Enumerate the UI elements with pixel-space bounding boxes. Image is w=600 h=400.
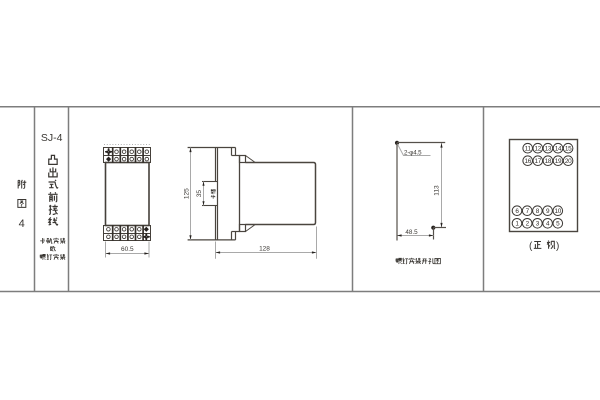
- svg-text:35: 35: [196, 190, 203, 198]
- svg-text:1: 1: [515, 221, 519, 228]
- svg-text:2: 2: [526, 221, 530, 228]
- svg-text:20: 20: [565, 158, 572, 165]
- svg-text:125: 125: [184, 188, 191, 199]
- svg-text:5: 5: [556, 221, 560, 228]
- svg-text:6: 6: [515, 208, 519, 215]
- svg-text:4: 4: [546, 221, 550, 228]
- svg-text:60.5: 60.5: [121, 246, 134, 253]
- svg-text:8: 8: [536, 208, 540, 215]
- svg-text:11: 11: [525, 145, 532, 152]
- svg-text:19: 19: [555, 158, 562, 165]
- svg-text:17: 17: [535, 158, 542, 165]
- svg-text:128: 128: [259, 246, 270, 253]
- svg-text:16: 16: [524, 158, 531, 165]
- svg-text:12: 12: [535, 145, 542, 152]
- svg-text:4: 4: [19, 218, 25, 230]
- svg-text:14: 14: [555, 145, 562, 152]
- svg-text:3: 3: [536, 221, 540, 228]
- svg-text:13: 13: [545, 145, 552, 152]
- svg-text:2-φ4.5: 2-φ4.5: [404, 150, 422, 157]
- svg-text:): ): [556, 241, 559, 252]
- svg-text:10: 10: [555, 208, 562, 215]
- svg-text:15: 15: [565, 145, 572, 152]
- svg-text:113: 113: [434, 185, 441, 196]
- svg-text:7: 7: [526, 208, 530, 215]
- svg-text:9: 9: [546, 208, 550, 215]
- svg-text:(: (: [529, 241, 533, 252]
- svg-text:48.5: 48.5: [405, 229, 418, 236]
- svg-text:SJ-4: SJ-4: [41, 132, 63, 144]
- svg-text:18: 18: [545, 158, 552, 165]
